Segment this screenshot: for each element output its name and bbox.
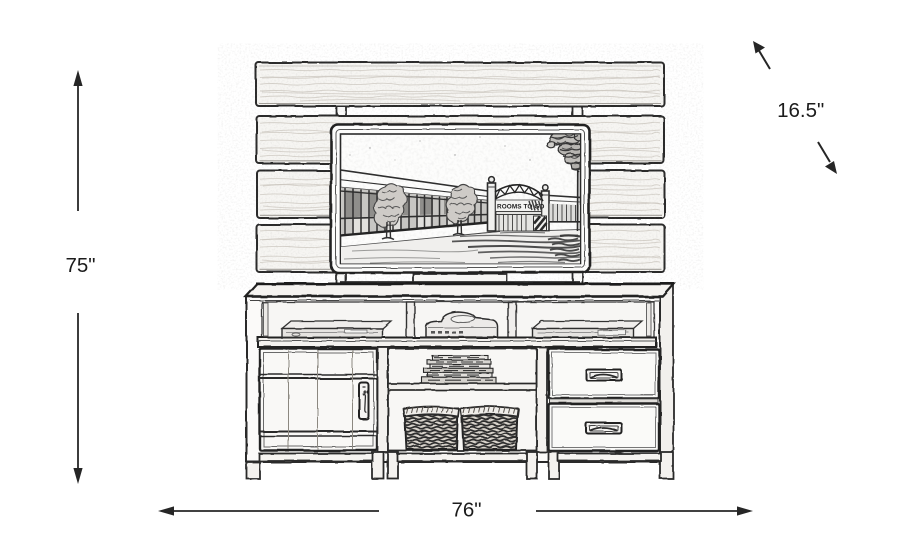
svg-text:76": 76" (451, 499, 481, 522)
svg-text:16.5": 16.5" (777, 99, 824, 122)
svg-text:75": 75" (65, 254, 95, 277)
